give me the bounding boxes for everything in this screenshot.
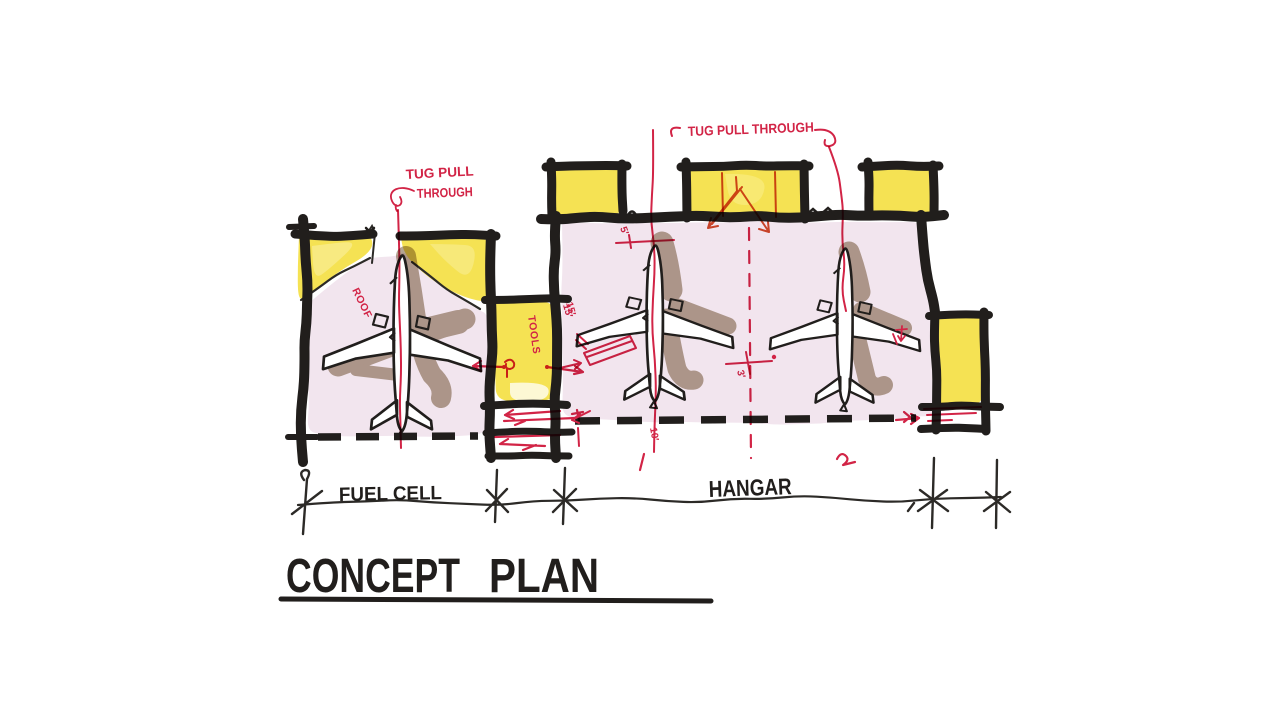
svg-text:FUEL CELL: FUEL CELL xyxy=(339,482,442,506)
svg-text:PLAN: PLAN xyxy=(489,550,599,603)
svg-text:HANGAR: HANGAR xyxy=(708,473,792,502)
svg-text:THROUGH: THROUGH xyxy=(417,184,473,201)
svg-text:CONCEPT: CONCEPT xyxy=(286,550,460,603)
